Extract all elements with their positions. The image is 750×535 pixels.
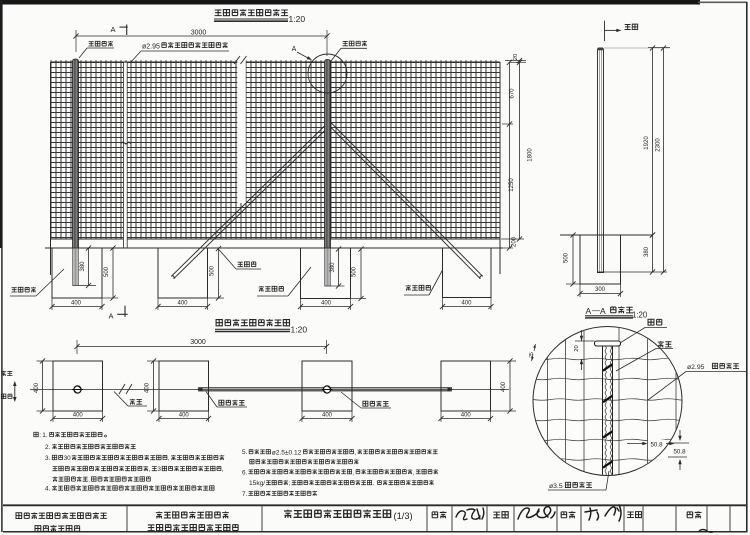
svg-text:6.: 6. bbox=[242, 469, 248, 476]
svg-text:50.8: 50.8 bbox=[650, 442, 663, 449]
svg-text:2.: 2. bbox=[45, 444, 51, 451]
svg-text:400: 400 bbox=[71, 301, 82, 307]
svg-text:(1/3): (1/3) bbox=[394, 511, 413, 521]
svg-text:A: A bbox=[586, 306, 592, 316]
svg-text:3000: 3000 bbox=[190, 339, 206, 346]
svg-text:400: 400 bbox=[34, 382, 40, 393]
svg-text:4.: 4. bbox=[45, 485, 51, 492]
svg-text:3: 3 bbox=[157, 466, 161, 473]
svg-text:30: 30 bbox=[64, 455, 72, 462]
svg-text:300: 300 bbox=[595, 287, 606, 293]
svg-text:20: 20 bbox=[513, 54, 519, 60]
svg-text:500: 500 bbox=[210, 265, 216, 276]
svg-text:380: 380 bbox=[80, 261, 86, 272]
svg-text:400: 400 bbox=[177, 301, 188, 307]
svg-text:—: — bbox=[592, 306, 600, 315]
svg-text:3000: 3000 bbox=[191, 30, 207, 37]
svg-text:400: 400 bbox=[461, 413, 472, 419]
svg-text:1:20: 1:20 bbox=[632, 311, 648, 320]
svg-text:3.: 3. bbox=[45, 455, 51, 462]
svg-text:200: 200 bbox=[512, 236, 518, 247]
svg-text:ø3.5: ø3.5 bbox=[549, 483, 563, 490]
svg-text:400: 400 bbox=[501, 381, 507, 392]
svg-text:380: 380 bbox=[644, 246, 650, 257]
svg-text:20: 20 bbox=[574, 345, 580, 351]
svg-text:7.: 7. bbox=[242, 491, 248, 498]
svg-text:400: 400 bbox=[461, 301, 472, 307]
svg-text:1250: 1250 bbox=[509, 178, 515, 192]
svg-text:380: 380 bbox=[330, 262, 336, 273]
svg-text:400: 400 bbox=[321, 301, 332, 307]
svg-text:5.: 5. bbox=[242, 449, 248, 456]
svg-text:A: A bbox=[292, 46, 297, 53]
svg-text:670: 670 bbox=[510, 88, 516, 99]
svg-text:500: 500 bbox=[104, 266, 110, 277]
svg-text:50.8: 50.8 bbox=[673, 448, 686, 455]
svg-text:1:20: 1:20 bbox=[291, 325, 308, 335]
svg-text:1920: 1920 bbox=[644, 136, 650, 150]
svg-text:ø2.95: ø2.95 bbox=[687, 364, 705, 371]
svg-text:A: A bbox=[600, 306, 606, 316]
svg-text:25: 25 bbox=[529, 352, 535, 358]
svg-text:ø2.95: ø2.95 bbox=[142, 44, 160, 51]
svg-text:1.: 1. bbox=[42, 432, 48, 439]
svg-text:2300: 2300 bbox=[656, 138, 662, 152]
svg-text:400: 400 bbox=[322, 413, 333, 419]
svg-text:400: 400 bbox=[73, 413, 84, 419]
svg-text:A: A bbox=[110, 25, 115, 34]
svg-text:A: A bbox=[108, 312, 113, 321]
svg-text:500: 500 bbox=[564, 252, 570, 263]
svg-text::: : bbox=[39, 432, 41, 439]
svg-text:400: 400 bbox=[145, 382, 151, 393]
svg-text:15kg/: 15kg/ bbox=[249, 480, 265, 487]
svg-text:400: 400 bbox=[179, 413, 190, 419]
svg-text:ø2.5±0.12: ø2.5±0.12 bbox=[272, 449, 302, 456]
svg-text:、: 、 bbox=[372, 481, 377, 487]
svg-text:500: 500 bbox=[352, 266, 358, 277]
svg-text:1800: 1800 bbox=[528, 148, 534, 162]
svg-text:1:20: 1:20 bbox=[289, 14, 306, 24]
